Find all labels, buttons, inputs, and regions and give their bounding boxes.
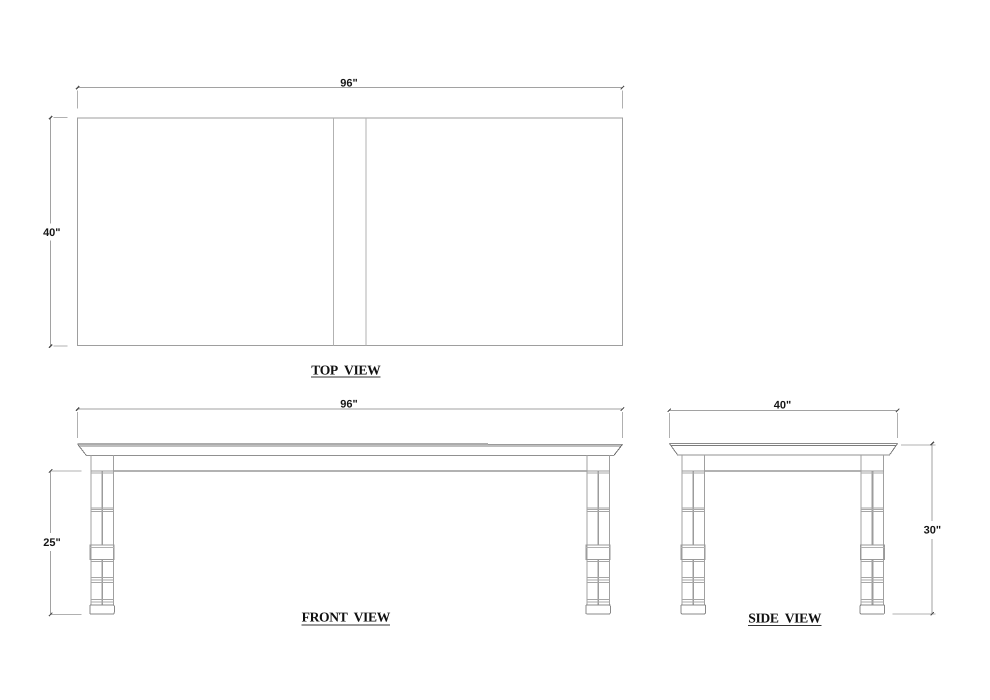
svg-text:30": 30" [924, 525, 941, 537]
svg-text:FRONT VIEW: FRONT VIEW [302, 610, 391, 625]
svg-text:TOP VIEW: TOP VIEW [311, 363, 381, 378]
svg-text:25": 25" [43, 537, 60, 549]
svg-text:96": 96" [340, 78, 357, 90]
svg-text:40": 40" [774, 400, 791, 412]
svg-text:40": 40" [43, 227, 60, 239]
svg-text:96": 96" [340, 399, 357, 411]
svg-text:SIDE VIEW: SIDE VIEW [748, 610, 822, 625]
